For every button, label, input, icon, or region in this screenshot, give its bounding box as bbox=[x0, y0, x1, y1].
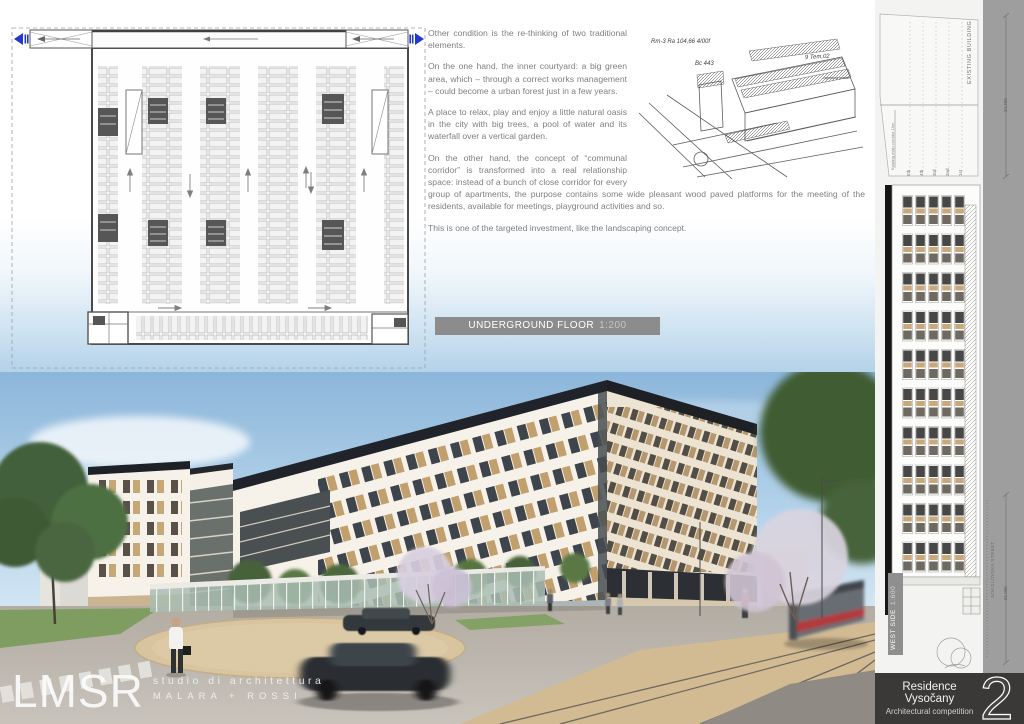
logo-initials: LMSR bbox=[12, 668, 144, 714]
essay-paragraph: This is one of the targeted investment, … bbox=[428, 222, 865, 234]
floor-label: 3rd bbox=[932, 169, 937, 176]
project-subtitle: Architectural competition bbox=[879, 707, 980, 716]
presentation-board: Rm-3 Ra 104,66 4/00f Bc 443 9 Tem,02 cop… bbox=[0, 0, 1024, 724]
underground-floor-plan bbox=[8, 22, 428, 372]
studio-logo: LMSR studio di architettura MALARA + ROS… bbox=[12, 668, 324, 714]
ramp-arrow-icon-right bbox=[409, 33, 424, 45]
sketch-annotation: Rm-3 Ra 104,66 4/00f bbox=[651, 39, 711, 45]
west-elevation-drawing bbox=[875, 0, 1024, 724]
title-block: Residence Vysočany Architectural competi… bbox=[875, 673, 1024, 724]
dimension-value: 34.400 bbox=[1003, 98, 1008, 112]
corridor-note: Existing main corridor 19m bbox=[890, 123, 895, 170]
entry-ramp-left bbox=[30, 30, 92, 48]
plan-caption-bar: UNDERGROUND FLOOR1:200 bbox=[435, 317, 660, 335]
floor-label: 5th bbox=[906, 170, 911, 176]
logo-tagline: studio di architettura bbox=[153, 675, 325, 687]
logo-names: MALARA + ROSSI bbox=[153, 691, 325, 702]
essay-text-block: Rm-3 Ra 104,66 4/00f Bc 443 9 Tem,02 cop… bbox=[428, 27, 865, 243]
dimension-value: 81.000 bbox=[1003, 586, 1008, 600]
street-label: SOKOLOVSKA STREET bbox=[990, 541, 995, 598]
concept-hand-sketch: Rm-3 Ra 104,66 4/00f Bc 443 9 Tem,02 cop… bbox=[637, 27, 865, 179]
entry-ramp-right bbox=[346, 30, 408, 48]
west-side-label: WEST SIDE1:600 bbox=[890, 586, 897, 650]
floor-label: 4th bbox=[919, 170, 924, 176]
sketch-annotation: copertura prefab bbox=[823, 76, 849, 80]
elevation-sidebar: EXISTING BUILDING Existing main corridor… bbox=[875, 0, 1024, 724]
plan-caption-title: UNDERGROUND FLOOR bbox=[468, 320, 594, 331]
sketch-annotation: Bc 443 bbox=[695, 61, 714, 67]
floor-label: 1st bbox=[958, 170, 963, 176]
ramp-arrow-icon-left bbox=[14, 33, 29, 45]
plan-caption-scale: 1:200 bbox=[599, 320, 627, 331]
floor-label: 2nd bbox=[945, 168, 950, 176]
page-number: 2 bbox=[980, 673, 1024, 724]
project-title: Residence Vysočany bbox=[879, 681, 980, 705]
proposed-elevation bbox=[885, 185, 980, 615]
existing-building-label: EXISTING BUILDING bbox=[967, 21, 973, 84]
